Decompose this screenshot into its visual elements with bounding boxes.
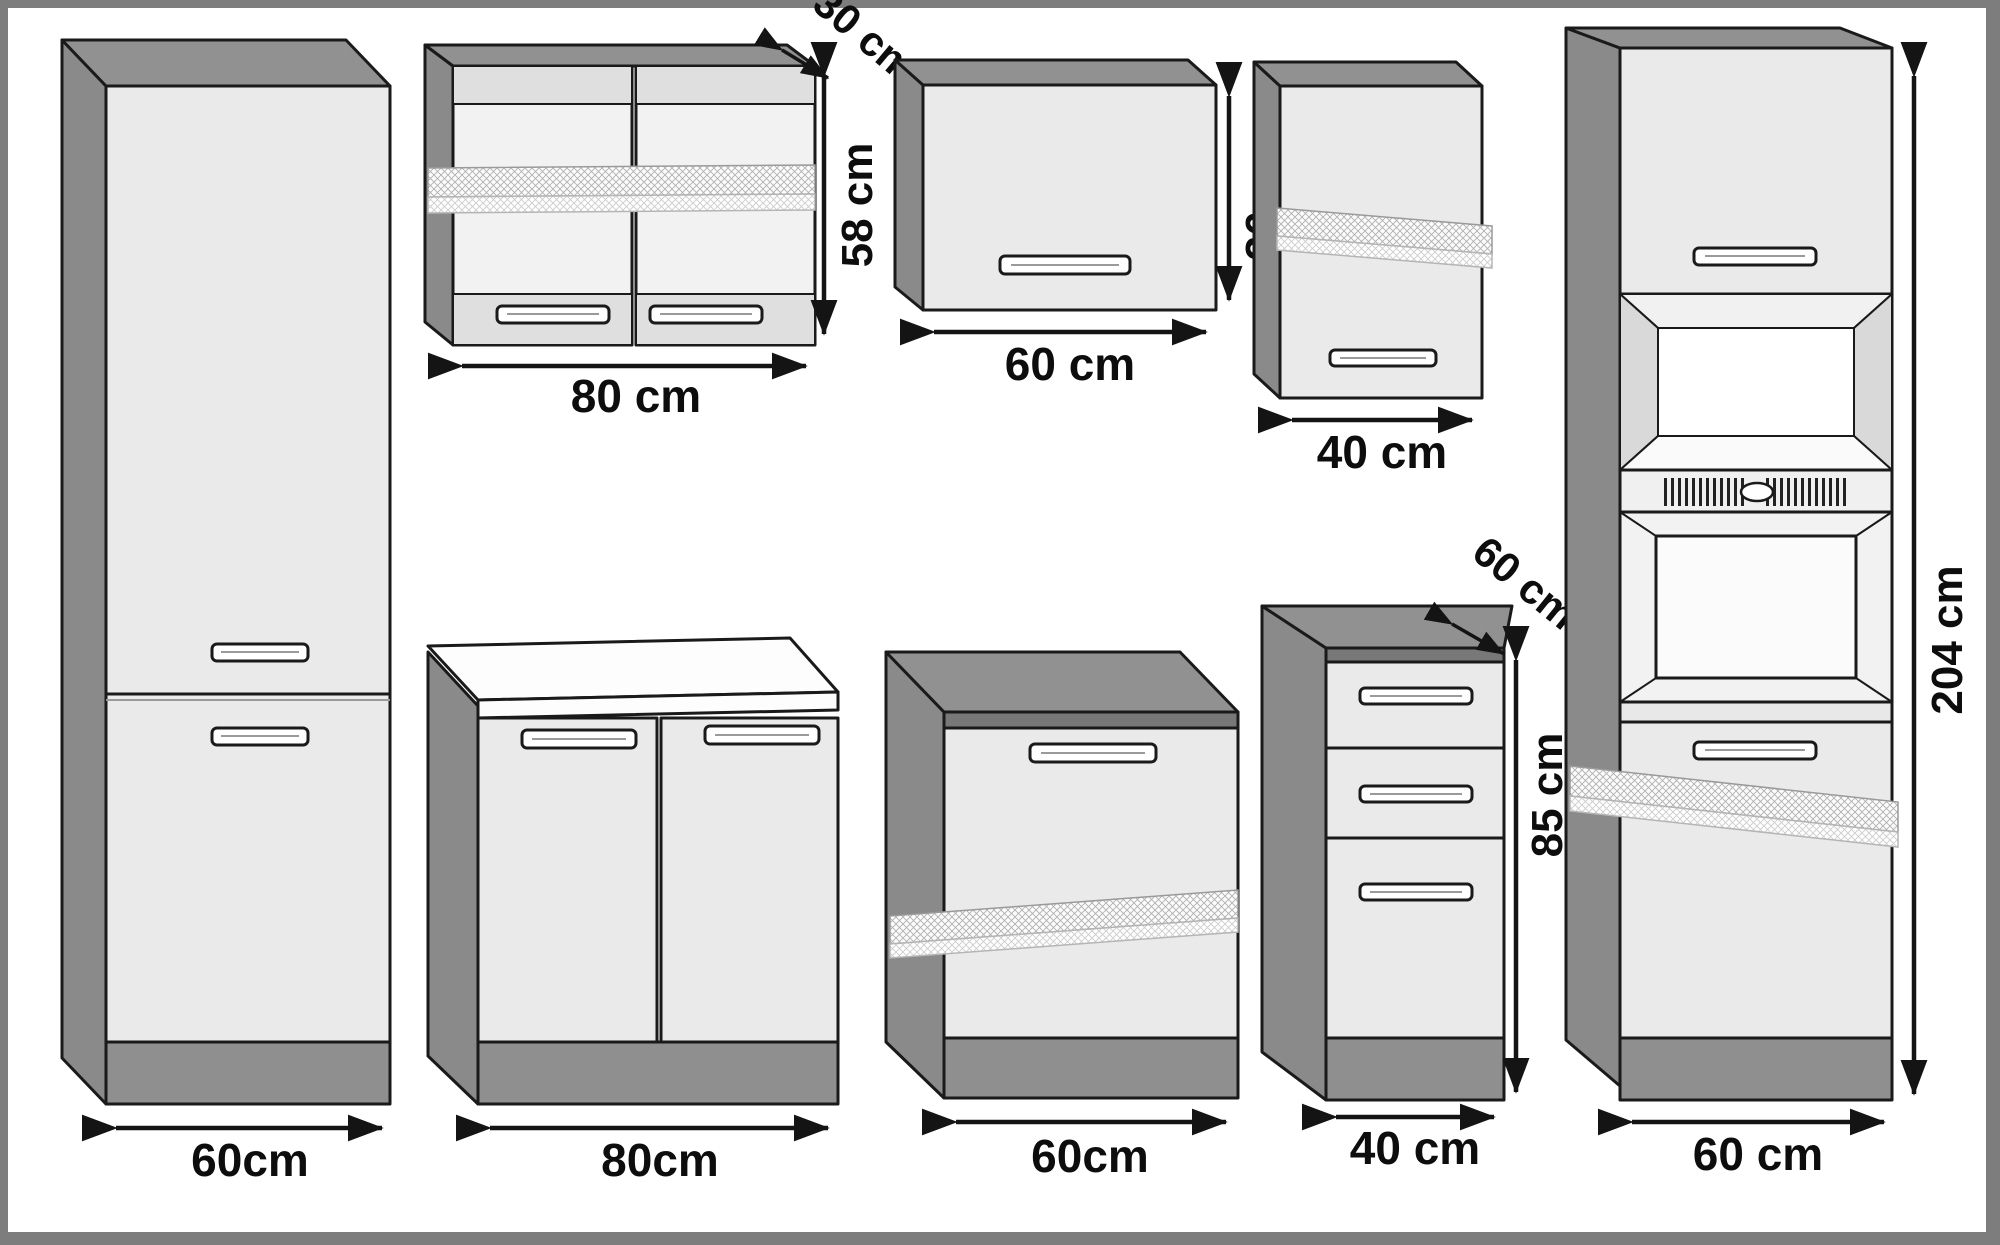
cabinet-top-face xyxy=(62,40,390,86)
cabinet-top-face xyxy=(895,60,1216,85)
cabinet-side-panel xyxy=(886,652,944,1098)
drawer-handle-2 xyxy=(1360,786,1472,802)
cabinet-top-face xyxy=(1566,28,1892,48)
flap-door xyxy=(923,85,1216,310)
cabinet-side-panel xyxy=(1262,606,1326,1100)
width-dimension-label: 60 cm xyxy=(1005,338,1135,390)
base-cabinet-80cm: 80cm xyxy=(428,638,838,1186)
door-handle xyxy=(1030,744,1156,762)
width-dimension-label: 80 cm xyxy=(571,370,701,422)
plinth xyxy=(1620,1038,1892,1100)
oven-control-panel xyxy=(1620,470,1892,512)
door-right xyxy=(661,718,838,1042)
microwave-niche xyxy=(1620,294,1892,470)
cabinet-dimension-diagram: 60cm 58 cm 30 cm 80 cm xyxy=(0,0,2000,1245)
plinth xyxy=(106,1042,390,1104)
glass-shelf-edge xyxy=(428,194,815,213)
tall-cabinet-left: 60cm xyxy=(62,40,390,1186)
drawer-handle-3 xyxy=(1360,884,1472,900)
lower-drawer-handle xyxy=(1694,742,1816,759)
plinth xyxy=(478,1042,838,1104)
door-handle xyxy=(1000,256,1130,274)
cabinet-top-face xyxy=(1254,62,1482,86)
lower-door-handle xyxy=(212,728,308,745)
worktop-surface xyxy=(428,638,838,700)
height-dimension-label: 58 cm xyxy=(833,143,882,268)
lower-drawer-front xyxy=(1620,722,1892,1038)
oven-door xyxy=(1620,512,1892,702)
plinth xyxy=(1326,1038,1504,1100)
oven-lower-rail xyxy=(1620,702,1892,722)
cabinet-front xyxy=(106,86,390,1042)
worktop-front-edge xyxy=(1326,648,1504,662)
cabinet-side-panel xyxy=(1566,28,1620,1086)
oven-knob xyxy=(1741,483,1773,501)
width-dimension-label: 40 cm xyxy=(1317,426,1447,478)
cabinet-top-face xyxy=(425,45,815,66)
cabinet-side-panel xyxy=(62,40,106,1104)
top-door-handle xyxy=(1694,248,1816,265)
door-handle-right xyxy=(705,726,819,744)
door-left xyxy=(478,718,657,1042)
width-dimension-label: 80cm xyxy=(601,1134,719,1186)
cabinet-side-panel xyxy=(895,60,923,310)
door-handle-left xyxy=(522,730,636,748)
width-dimension-label: 60 cm xyxy=(1693,1128,1823,1180)
width-dimension-label: 60cm xyxy=(191,1134,309,1186)
drawer-front-3 xyxy=(1326,838,1504,1038)
worktop-front-edge xyxy=(944,712,1238,728)
cabinet-side-panel xyxy=(1254,62,1280,398)
upper-door-handle xyxy=(212,644,308,661)
width-dimension-label: 60cm xyxy=(1031,1130,1149,1182)
door-handle xyxy=(1330,350,1436,366)
width-dimension-label: 40 cm xyxy=(1350,1122,1480,1174)
drawer-handle-1 xyxy=(1360,688,1472,704)
glass-shelf xyxy=(428,165,815,197)
plinth xyxy=(944,1038,1238,1098)
door xyxy=(944,728,1238,1038)
diagram-canvas: 60cm 58 cm 30 cm 80 cm xyxy=(0,0,2000,1245)
height-dimension-label: 204 cm xyxy=(1923,565,1972,714)
cabinet-top-face xyxy=(886,652,1238,712)
cabinet-side-panel xyxy=(428,652,478,1104)
